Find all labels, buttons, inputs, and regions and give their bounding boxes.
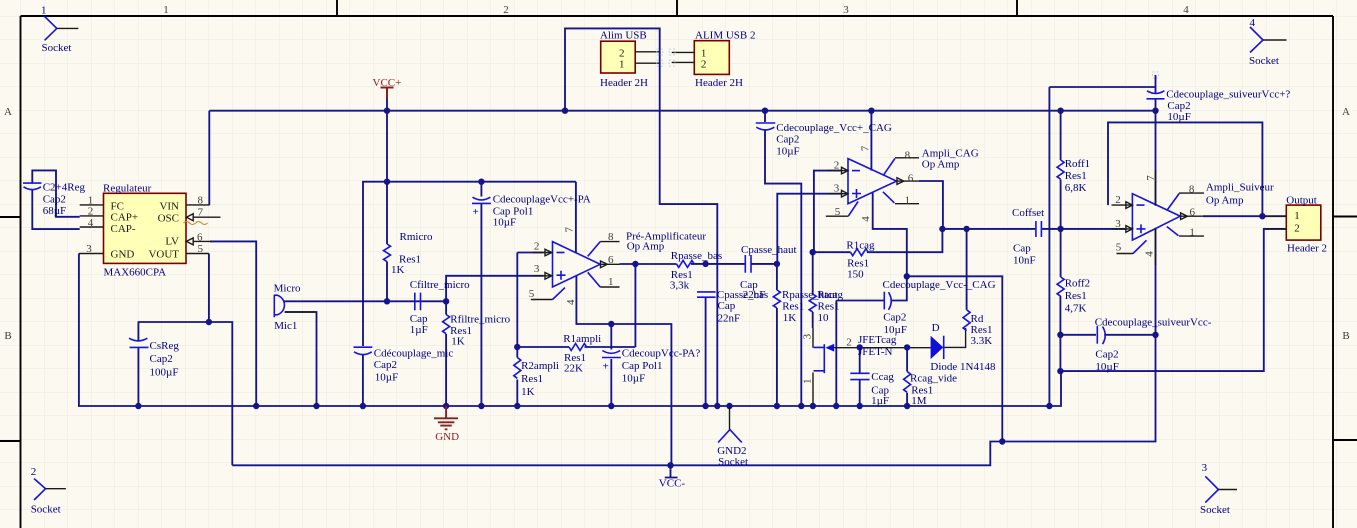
svg-text:Cap2: Cap2 <box>43 194 66 206</box>
svg-text:Rpasse_bas: Rpasse_bas <box>671 250 722 262</box>
svg-text:Rcag_vide: Rcag_vide <box>910 373 957 385</box>
svg-text:10µF: 10µF <box>622 373 645 385</box>
svg-text:5: 5 <box>1116 241 1122 253</box>
svg-text:JFET-N: JFET-N <box>858 346 892 358</box>
svg-text:Header 2H: Header 2H <box>600 77 648 89</box>
svg-text:GND: GND <box>111 249 135 261</box>
svg-text:A: A <box>4 106 12 118</box>
svg-text:6: 6 <box>908 172 914 184</box>
svg-text:+: + <box>603 361 609 373</box>
svg-text:7: 7 <box>564 227 576 233</box>
svg-text:D: D <box>932 322 940 334</box>
svg-text:3,3k: 3,3k <box>670 280 690 292</box>
svg-text:A: A <box>1342 106 1350 118</box>
svg-text:100µF: 100µF <box>150 366 179 378</box>
svg-text:Cap2: Cap2 <box>150 353 173 365</box>
svg-text:Output: Output <box>1286 195 1317 207</box>
svg-text:4: 4 <box>565 299 577 305</box>
svg-text:Cap2: Cap2 <box>883 312 906 324</box>
svg-text:VIN: VIN <box>159 201 179 213</box>
svg-text:1K: 1K <box>451 336 465 348</box>
svg-text:4,7K: 4,7K <box>1065 303 1087 315</box>
svg-text:Rfiltre_micro: Rfiltre_micro <box>450 314 510 326</box>
svg-text:Cap2: Cap2 <box>1095 349 1118 361</box>
svg-text:MAX660CPA: MAX660CPA <box>104 267 167 279</box>
svg-text:150: 150 <box>847 269 864 281</box>
svg-text:1K: 1K <box>391 264 405 276</box>
svg-text:8: 8 <box>905 150 911 162</box>
svg-text:8: 8 <box>1189 184 1195 196</box>
svg-text:Alim USB: Alim USB <box>600 30 647 42</box>
svg-text:10µF: 10µF <box>1167 111 1190 123</box>
svg-text:GND2: GND2 <box>717 445 746 457</box>
svg-text:Cpasse_haut: Cpasse_haut <box>741 244 797 256</box>
svg-text:FC: FC <box>111 201 124 213</box>
svg-text:1: 1 <box>701 48 707 60</box>
svg-text:6,8K: 6,8K <box>1065 182 1087 194</box>
svg-text:Header 2: Header 2 <box>1287 243 1327 255</box>
svg-text:Cfiltre_micro: Cfiltre_micro <box>410 279 470 291</box>
svg-text:4: 4 <box>88 217 94 229</box>
svg-text:10µF: 10µF <box>493 217 516 229</box>
svg-text:GND: GND <box>435 431 459 443</box>
svg-text:C2+4Reg: C2+4Reg <box>43 181 86 193</box>
svg-text:5: 5 <box>198 243 204 255</box>
svg-text:22K: 22K <box>564 362 583 374</box>
svg-text:Roff2: Roff2 <box>1065 277 1090 289</box>
svg-text:10µF: 10µF <box>1095 361 1118 373</box>
svg-text:Ampli_Suiveur: Ampli_Suiveur <box>1206 182 1274 194</box>
svg-text:1K: 1K <box>783 312 797 324</box>
svg-text:7: 7 <box>198 207 204 219</box>
svg-text:Regulateur: Regulateur <box>103 183 152 195</box>
svg-text:3: 3 <box>834 182 840 194</box>
svg-text:Cap Pol1: Cap Pol1 <box>622 360 663 372</box>
svg-text:1: 1 <box>41 5 47 17</box>
svg-text:R1ampli: R1ampli <box>563 333 601 345</box>
svg-text:2: 2 <box>1115 194 1121 206</box>
svg-text:10: 10 <box>818 312 830 324</box>
svg-text:3: 3 <box>86 243 92 255</box>
svg-text:Mic1: Mic1 <box>274 320 297 332</box>
svg-text:7: 7 <box>860 145 872 151</box>
svg-text:Diode 1N4148: Diode 1N4148 <box>930 361 996 373</box>
svg-text:1: 1 <box>1189 227 1195 239</box>
svg-text:3.3K: 3.3K <box>971 335 993 347</box>
svg-text:VCC-: VCC- <box>659 478 686 490</box>
svg-text:CdecouplageVcc+-PA: CdecouplageVcc+-PA <box>493 194 591 206</box>
svg-text:3: 3 <box>1202 462 1208 474</box>
svg-text:+: + <box>473 206 479 218</box>
svg-text:OSC: OSC <box>158 213 179 225</box>
svg-text:Micro: Micro <box>274 282 301 294</box>
svg-text:1: 1 <box>1294 210 1300 222</box>
svg-text:Cdecouplage_suiveurVcc-: Cdecouplage_suiveurVcc- <box>1095 317 1212 329</box>
svg-text:CdecoupVcc-PA?: CdecoupVcc-PA? <box>622 347 701 359</box>
svg-text:Res1: Res1 <box>1065 170 1087 182</box>
svg-text:VOUT: VOUT <box>148 249 179 261</box>
svg-text:5: 5 <box>529 288 535 300</box>
svg-text:4: 4 <box>860 216 872 222</box>
svg-text:Socket: Socket <box>31 504 61 516</box>
svg-text:1: 1 <box>619 59 625 71</box>
svg-text:Res1: Res1 <box>847 257 869 269</box>
svg-text:Cap: Cap <box>1013 243 1031 255</box>
svg-text:2: 2 <box>534 241 540 253</box>
svg-text:Rmicro: Rmicro <box>400 231 433 243</box>
svg-text:6: 6 <box>197 231 203 243</box>
svg-text:1µF: 1µF <box>410 324 428 336</box>
svg-text:Header 2H: Header 2H <box>695 77 743 89</box>
svg-text:Cap Pol1: Cap Pol1 <box>493 205 534 217</box>
svg-text:Cap2: Cap2 <box>776 134 799 146</box>
svg-text:2: 2 <box>834 160 840 172</box>
svg-text:Res1: Res1 <box>818 301 840 313</box>
svg-text:Socket: Socket <box>1249 55 1279 67</box>
svg-text:2: 2 <box>701 59 707 71</box>
svg-text:2: 2 <box>503 4 509 16</box>
svg-text:2: 2 <box>1294 223 1300 235</box>
svg-text:R2ampli: R2ampli <box>521 360 559 372</box>
svg-text:Op Amp: Op Amp <box>1206 195 1244 207</box>
svg-text:Cap2: Cap2 <box>374 359 397 371</box>
svg-text:3: 3 <box>843 4 849 16</box>
svg-text:CAP-: CAP- <box>111 223 136 235</box>
svg-text:Res1: Res1 <box>971 324 993 336</box>
svg-text:2: 2 <box>88 206 94 218</box>
svg-text:Cap: Cap <box>718 300 736 312</box>
svg-text:6: 6 <box>608 254 614 266</box>
svg-text:B: B <box>1342 330 1349 342</box>
svg-text:Res1: Res1 <box>1065 290 1087 302</box>
svg-text:Res1: Res1 <box>782 301 804 313</box>
svg-text:Socket: Socket <box>42 42 72 54</box>
svg-text:Ampli_CAG: Ampli_CAG <box>922 148 979 160</box>
svg-text:Coffset: Coffset <box>1012 207 1044 219</box>
svg-text:2: 2 <box>846 337 852 349</box>
svg-text:2: 2 <box>31 466 37 478</box>
svg-text:3: 3 <box>1115 218 1121 230</box>
svg-text:8: 8 <box>608 231 614 243</box>
svg-text:4: 4 <box>1144 251 1156 257</box>
svg-text:Socket: Socket <box>1200 504 1230 516</box>
svg-text:3: 3 <box>802 333 814 339</box>
svg-text:Roff1: Roff1 <box>1065 158 1090 170</box>
svg-text:R1cag: R1cag <box>846 239 875 251</box>
svg-text:5: 5 <box>835 206 841 218</box>
svg-text:Cdecouplage_Vcc+_CAG: Cdecouplage_Vcc+_CAG <box>776 122 892 134</box>
svg-text:10µF: 10µF <box>375 371 398 383</box>
svg-text:Op Amp: Op Amp <box>627 240 665 252</box>
svg-text:Cdecouplage_suiveurVcc+?: Cdecouplage_suiveurVcc+? <box>1166 88 1290 100</box>
svg-text:10µF: 10µF <box>776 146 799 158</box>
svg-text:Op Amp: Op Amp <box>922 159 960 171</box>
svg-text:1: 1 <box>801 379 813 385</box>
svg-text:Cap2: Cap2 <box>1167 100 1190 112</box>
svg-text:Res1: Res1 <box>521 373 543 385</box>
svg-text:ALIM USB 2: ALIM USB 2 <box>695 30 756 42</box>
svg-text:1: 1 <box>905 195 911 207</box>
svg-text:4: 4 <box>1183 4 1189 16</box>
svg-text:10nF: 10nF <box>1013 255 1036 267</box>
svg-text:10µF: 10µF <box>884 324 907 336</box>
svg-text:3: 3 <box>534 263 540 275</box>
svg-text:Socket: Socket <box>718 456 748 468</box>
svg-text:CsReg: CsReg <box>150 340 180 352</box>
svg-text:1µF: 1µF <box>871 395 889 407</box>
svg-text:1K: 1K <box>521 386 535 398</box>
svg-text:B: B <box>4 330 11 342</box>
svg-text:8: 8 <box>198 195 204 207</box>
svg-text:Rtcag: Rtcag <box>817 289 843 301</box>
svg-text:1: 1 <box>163 4 169 16</box>
svg-text:68µF: 68µF <box>43 205 66 217</box>
svg-text:22nF: 22nF <box>718 312 741 324</box>
svg-text:1: 1 <box>608 276 614 288</box>
svg-text:Ccag: Ccag <box>871 371 894 383</box>
svg-text:22nF: 22nF <box>743 289 766 301</box>
svg-text:LV: LV <box>165 235 179 247</box>
svg-text:Cdecouplage_Vcc-_CAG: Cdecouplage_Vcc-_CAG <box>883 279 996 291</box>
svg-text:6: 6 <box>1190 207 1196 219</box>
svg-text:Cdécouplage_mic: Cdécouplage_mic <box>374 347 454 359</box>
svg-text:1M: 1M <box>911 395 927 407</box>
svg-text:2: 2 <box>619 48 625 60</box>
